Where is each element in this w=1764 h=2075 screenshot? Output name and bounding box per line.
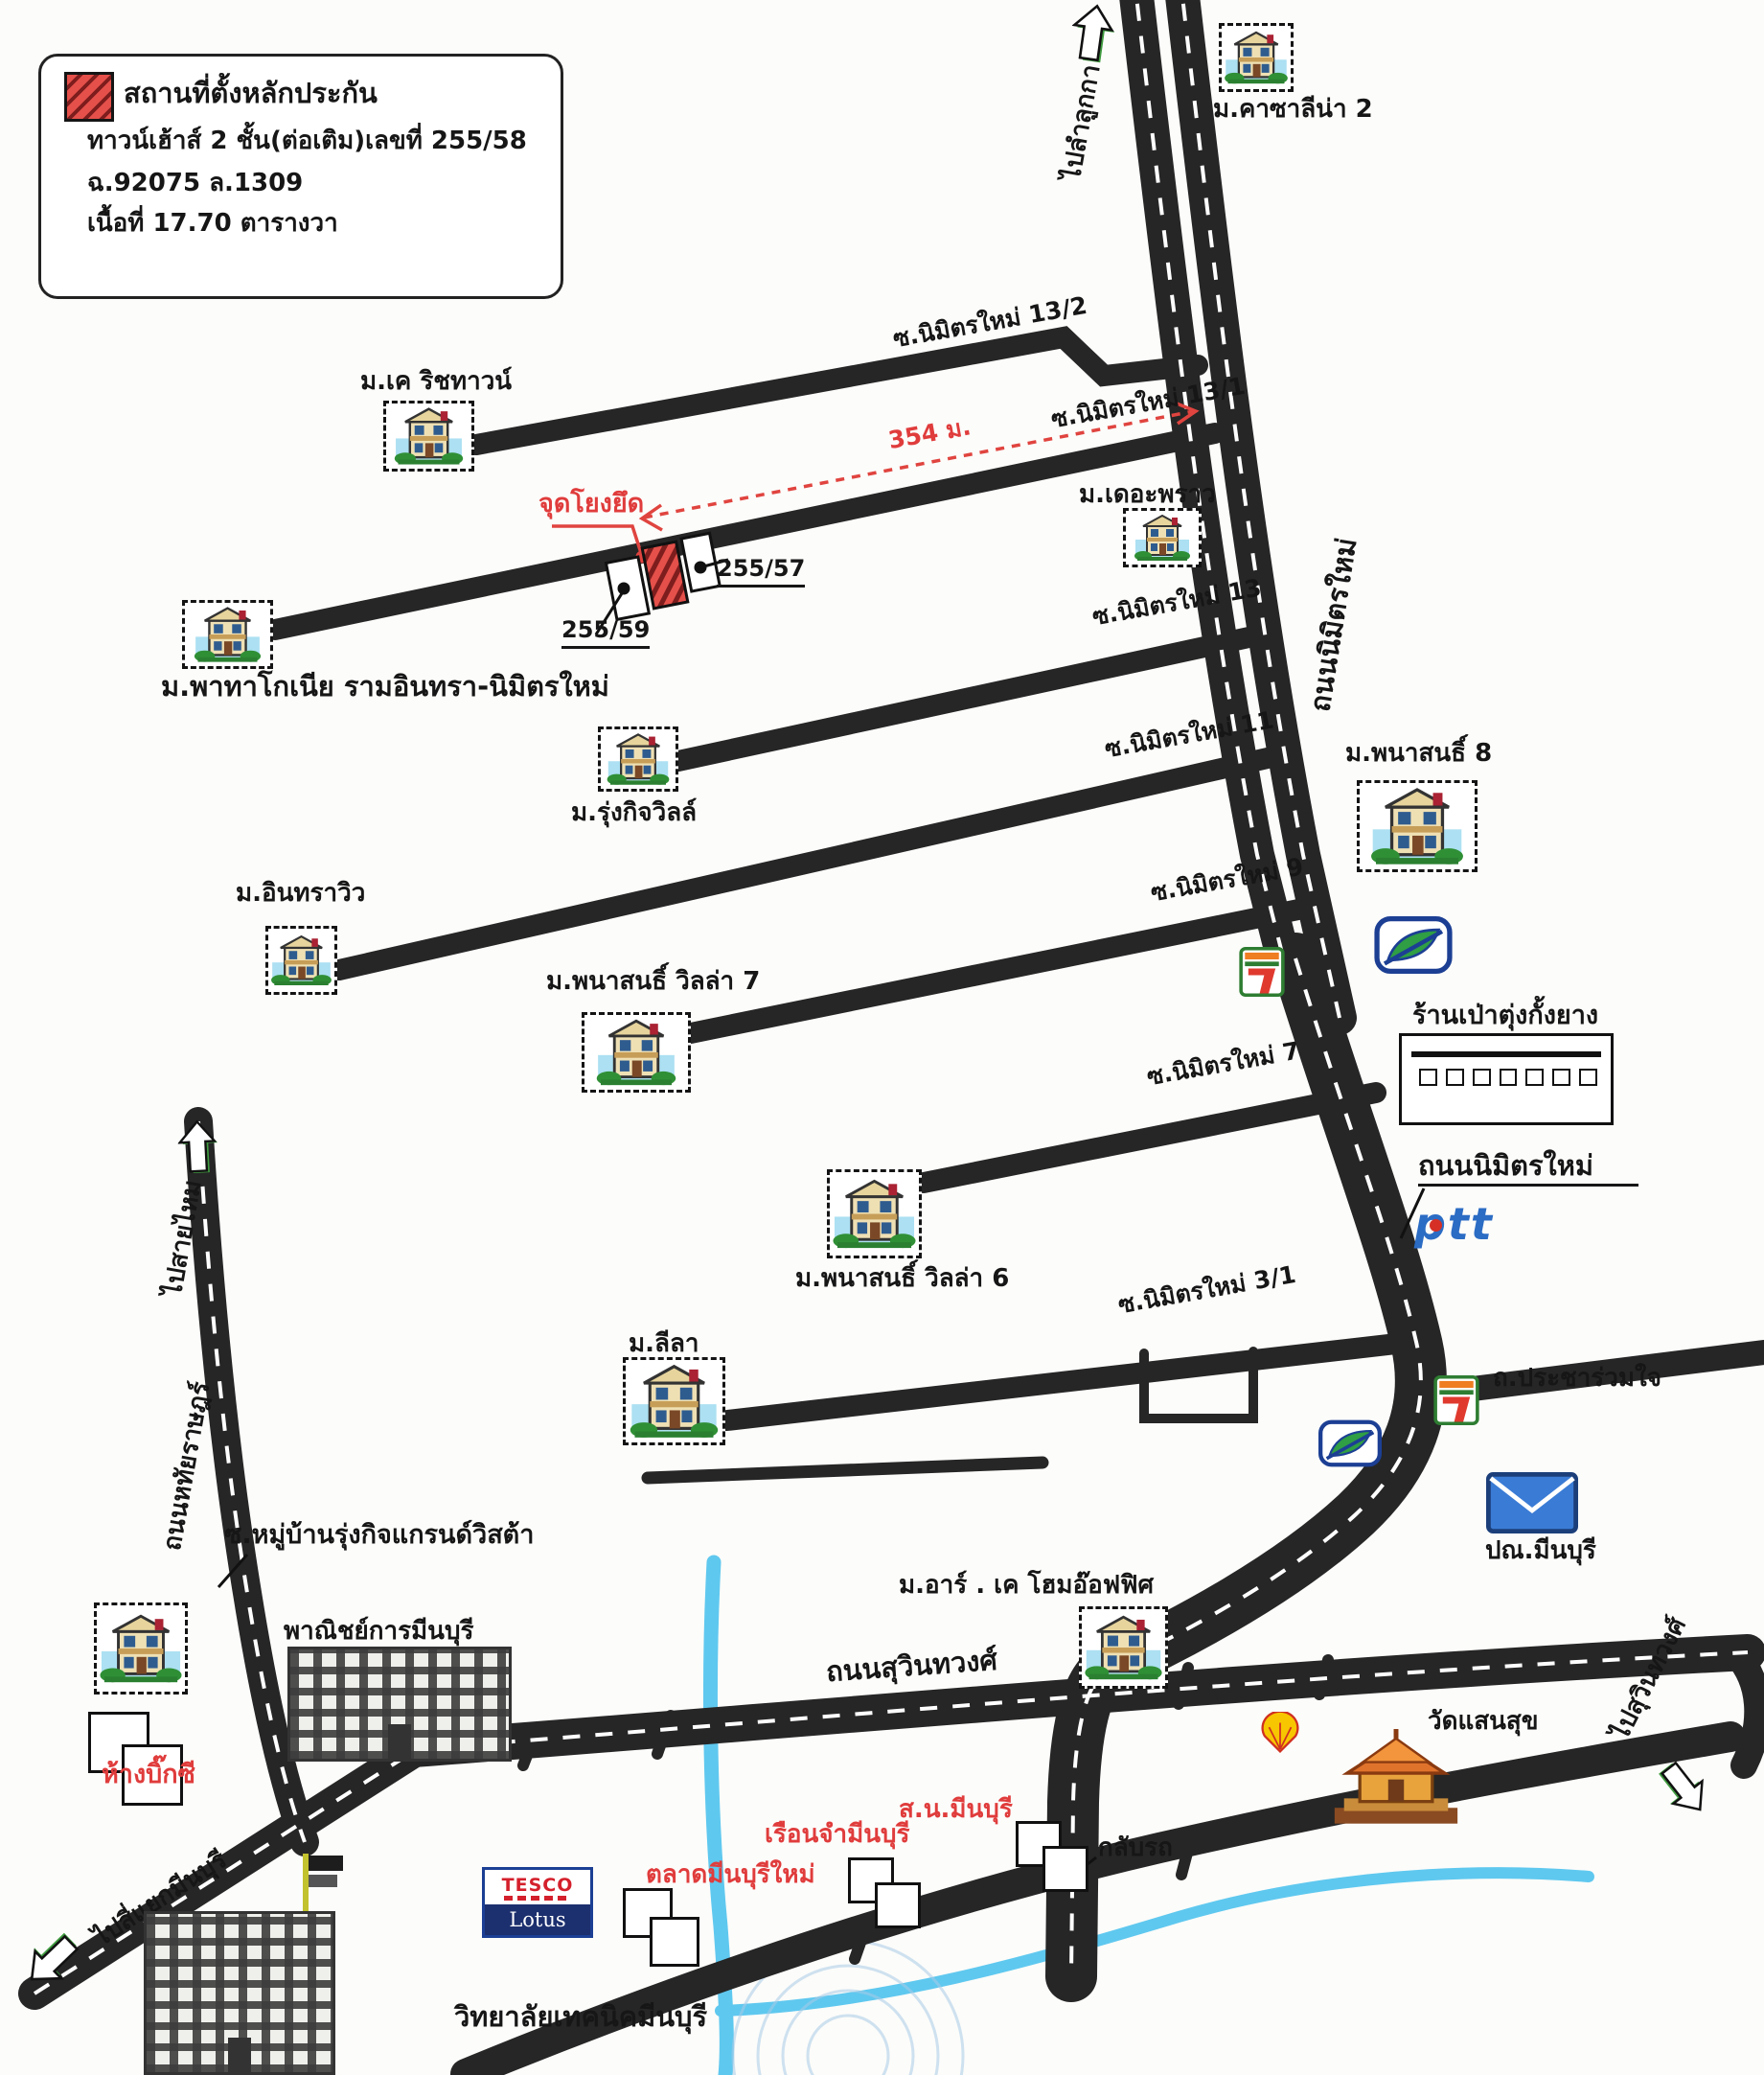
post-office-label: ปณ.มีนบุรี (1485, 1537, 1596, 1566)
prison-label: เรือนจำมีนบุรี (765, 1821, 909, 1850)
lotus-logo-text: Lotus (509, 1908, 565, 1931)
temple-icon (1325, 1729, 1467, 1827)
police-station-label: ส.น.มีนบุรี (899, 1796, 1013, 1825)
tesco-lotus-sign: TESCO Lotus (482, 1867, 593, 1938)
flag-icon-2 (309, 1875, 337, 1887)
collateral-hatch-swatch (64, 72, 114, 122)
seven-eleven-icon-2 (1433, 1375, 1479, 1425)
road-soi-9 (691, 909, 1303, 1033)
rungkit-ville-label: ม.รุ่งกิจวิลล์ (571, 799, 697, 828)
u-turn-label: กลับรถ (1098, 1834, 1173, 1863)
bangchak-leaf-icon-2 (1318, 1415, 1382, 1472)
leela-house-icon (623, 1357, 725, 1445)
parcel-255-59-label: 255/59 (561, 617, 650, 649)
phanasonthi-villa-6-house-icon (827, 1169, 922, 1258)
phanasonthi-villa-6-label: ม.พนาสนธิ์ วิลล่า 6 (795, 1265, 1009, 1294)
sai-mai-arrow-icon (177, 1118, 220, 1176)
ptt-logo-dot (1430, 1219, 1442, 1232)
phanasonthi-villa-7-house-icon (582, 1012, 691, 1093)
casalina-house-icon (1219, 23, 1294, 92)
casalina-label: ม.คาซาลีน่า 2 (1213, 96, 1373, 125)
shell-logo-icon (1258, 1712, 1302, 1756)
the-proud-label: ม.เดอะพราว (1079, 481, 1216, 510)
parcels (605, 533, 722, 619)
legend-line-area: เนื้อที่ 17.70 ตารางวา (87, 210, 338, 239)
minburi-collateral-map: สถานที่ตั้งหลักประกัน ทาวน์เฮ้าส์ 2 ชั้น… (0, 0, 1764, 2075)
tesco-logo-text: TESCO (502, 1875, 574, 1896)
rk-home-office-label: ม.อาร์ . เค โฮมอ๊อฟฟิศ (899, 1572, 1154, 1601)
technical-college-building (144, 1911, 335, 2075)
pracha-ruam-jai-label: ถ.ประชาร่วมใจ (1493, 1365, 1661, 1394)
road-soi-3-1 (727, 1340, 1430, 1420)
rungkit-grand-vista-house-icon (94, 1602, 188, 1695)
road-soi-13-2 (476, 337, 1198, 445)
post-office-envelope-icon (1485, 1472, 1579, 1533)
commercial-college-building (287, 1647, 512, 1762)
north-arrow-icon (1067, 1, 1119, 66)
nimit-mai-sign-label: ถนนนิมิตรใหม่ (1418, 1150, 1638, 1187)
soi-rungkit-label: ซ.หมู่บ้านรุ่งกิจแกรนด์วิสต้า (224, 1520, 534, 1550)
the-proud-house-icon (1123, 508, 1202, 567)
rk-home-office-house-icon (1079, 1606, 1168, 1689)
indraview-house-icon (265, 926, 337, 995)
market-label: ตลาดมีนบุรีใหม่ (646, 1861, 815, 1890)
prison-building-2 (875, 1882, 921, 1928)
technical-college-label: วิทยาลัยเทคนิคมีนบุรี (454, 2001, 707, 2033)
phanasonthi-villa-7-label: ม.พนาสนธิ์ วิลล่า 7 (546, 968, 760, 997)
phanasonthi-8-house-icon (1357, 780, 1478, 872)
indraview-label: ม.อินทราวิว (236, 880, 365, 909)
anchor-point-label: จุดโยงยึด (538, 489, 644, 519)
legend-line-deed: ฉ.92075 ล.1309 (87, 170, 303, 198)
legend-box: สถานที่ตั้งหลักประกัน ทาวน์เฮ้าส์ 2 ชั้น… (38, 54, 563, 299)
ptt-logo: ptt (1414, 1198, 1494, 1250)
police-building-2 (1042, 1846, 1088, 1892)
bangchak-leaf-icon (1373, 916, 1454, 974)
road-soi-7 (924, 1093, 1376, 1183)
legend-line-property: ทาวน์เฮ้าส์ 2 ชั้น(ต่อเติม)เลขที่ 255/58 (87, 127, 527, 156)
market-building-2 (650, 1917, 699, 1967)
tire-shop-label: ร้านเป่าตุ่งกั้งยาง (1412, 1001, 1598, 1030)
leela-label: ม.ลีลา (629, 1330, 699, 1359)
patagonia-house-icon (182, 600, 273, 669)
big-c-label: ห้างบิ๊กซี (102, 1760, 195, 1789)
tire-shop-building (1399, 1033, 1614, 1125)
patagonia-label: ม.พาทาโกเนีย รามอินทรา-นิมิตรใหม่ (161, 671, 609, 703)
parcel-255-57-label: 255/57 (717, 556, 805, 588)
k-rich-town-house-icon (383, 401, 474, 472)
commercial-college-label: พาณิชย์การมีนบุรี (284, 1618, 473, 1647)
seven-eleven-icon (1239, 947, 1285, 997)
k-rich-town-label: ม.เค ริชทาวน์ (360, 368, 512, 397)
legend-title: สถานที่ตั้งหลักประกัน (124, 78, 378, 109)
phanasonthi-8-label: ม.พนาสนธิ์ 8 (1345, 740, 1492, 769)
rungkit-ville-house-icon (598, 726, 678, 792)
flag-icon (309, 1856, 343, 1871)
road-leela-lane (648, 1463, 1042, 1478)
